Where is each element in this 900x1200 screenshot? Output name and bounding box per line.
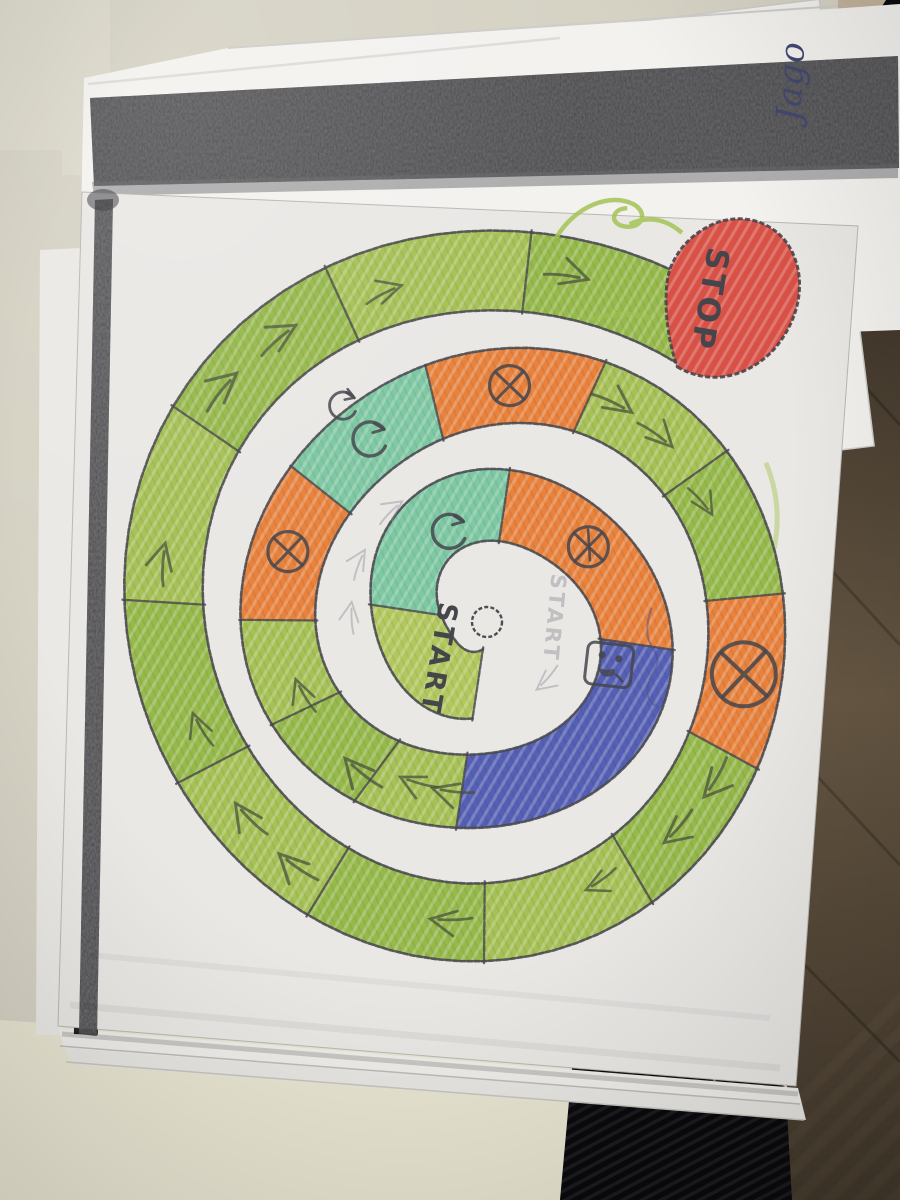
photo-of-hand-drawn-board-game: Jago <box>0 0 900 1200</box>
vignette <box>0 0 900 1200</box>
scene-svg: Jago <box>0 0 900 1200</box>
